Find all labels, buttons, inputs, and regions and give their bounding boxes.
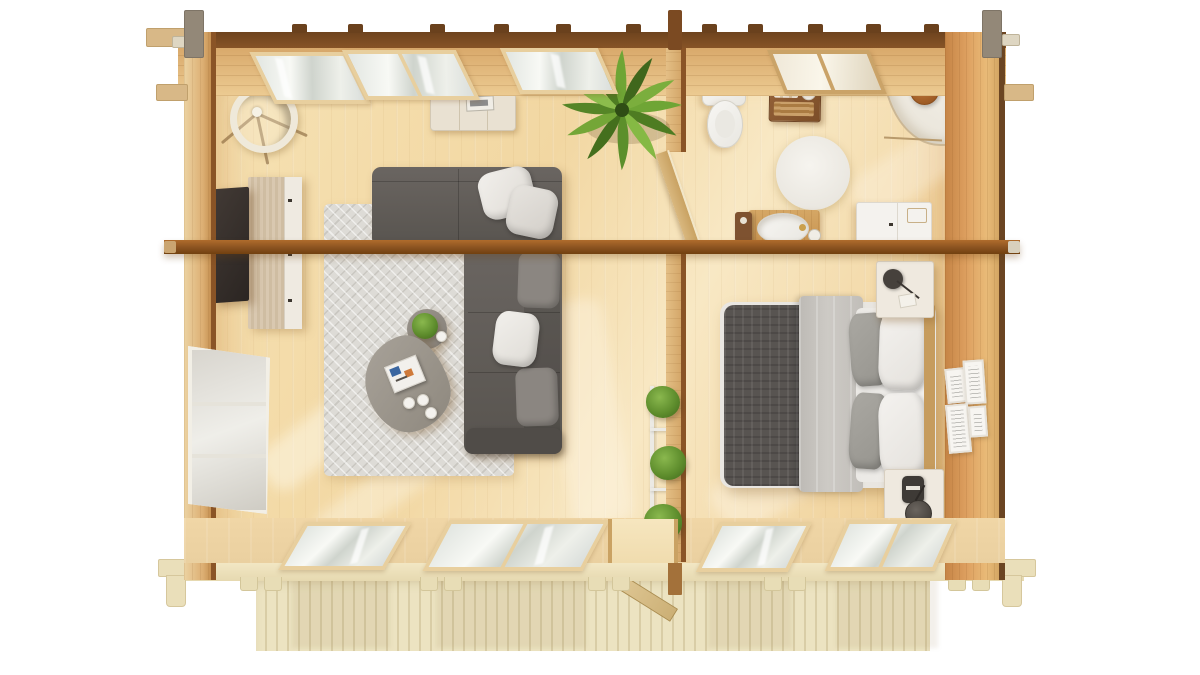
deck-shadow (836, 578, 938, 648)
coffee-cup (417, 394, 429, 406)
bed-pillow-white (878, 308, 929, 391)
book-art-blue (389, 366, 401, 377)
rafter-tab (430, 24, 445, 33)
sofa-seam (372, 181, 562, 182)
log-end-left (156, 84, 188, 101)
log-end-right (1004, 84, 1034, 101)
frame-art (968, 366, 981, 399)
joist-tab (612, 577, 630, 591)
sofa-pillow-white (491, 310, 541, 369)
frame-art (950, 373, 963, 397)
sofa-seam (458, 169, 459, 245)
corner-post-left (184, 10, 204, 58)
joist-tab (264, 577, 282, 591)
beam-end-left (164, 241, 176, 253)
coffee-cup (403, 397, 415, 409)
frame-art (973, 412, 982, 432)
rafter-tab (808, 24, 823, 33)
picture-frame (962, 359, 986, 404)
vase-band (906, 486, 920, 490)
toilet-brush-top (740, 217, 747, 224)
picture-frame (968, 405, 988, 437)
joist-tab (444, 577, 462, 591)
glass (192, 350, 266, 510)
right-wall-edge (999, 32, 1005, 580)
glass-reflection (275, 58, 292, 99)
knit-blanket (724, 305, 808, 486)
headboard (924, 305, 935, 485)
sofa-cushion-gray (515, 367, 559, 426)
book-text-line (396, 375, 408, 381)
round-bath-mat (776, 136, 850, 210)
drawer-handle (288, 199, 292, 202)
waste-bin (735, 212, 752, 242)
corner-bracket-left-leg (166, 575, 186, 607)
bathroom-top-window (767, 50, 887, 94)
corner-post-right (982, 10, 1002, 58)
desk-lamp-shade (883, 269, 903, 289)
glass-reflection (534, 526, 553, 566)
floor-lamp-hub (252, 107, 262, 117)
joist-tab (240, 577, 258, 591)
cabinet-seam (897, 203, 898, 245)
glass-reflection (417, 56, 434, 95)
top-window-3 (500, 48, 618, 94)
glass-reflection (757, 528, 773, 567)
joist-tab (588, 577, 606, 591)
doorway-opening (608, 519, 678, 563)
window-mullion (501, 524, 528, 567)
sofa-armrest (466, 428, 562, 454)
window-mullion (878, 524, 901, 567)
corner-bracket-right-leg (1002, 575, 1022, 607)
window-slat (192, 454, 266, 458)
glass-reflection (550, 54, 565, 89)
nightstand-top (876, 261, 934, 318)
rafter-tab (348, 24, 363, 33)
cabin-floorplan-render (0, 0, 1200, 675)
side-table-plant (412, 313, 438, 339)
window-mullion (817, 54, 836, 90)
glass-reflection (350, 528, 369, 565)
bed-pillow-white (878, 392, 929, 478)
joist-tab (420, 577, 438, 591)
partition-edge (681, 242, 686, 562)
center-roof-beam (164, 240, 1020, 254)
left-wall-window (188, 346, 270, 514)
rafter-tab (292, 24, 307, 33)
rafter-tab (626, 24, 641, 33)
top-window-2 (342, 50, 480, 100)
bottom-window-2 (422, 520, 609, 571)
side-table-cup (436, 331, 447, 342)
crate-shelf (774, 102, 814, 117)
rafter-tab (494, 24, 509, 33)
drawer-handle (288, 299, 292, 302)
notepad (898, 293, 917, 309)
rafter-tab (748, 24, 763, 33)
joist-tab (764, 577, 782, 591)
partition-top-post (668, 10, 682, 50)
joist-tab (788, 577, 806, 591)
window-slat (192, 402, 266, 406)
potted-plant (650, 446, 686, 480)
partition-wall-end (668, 561, 682, 595)
cabinet-handle (889, 223, 893, 226)
sofa-cushion-gray (517, 251, 561, 308)
rafter-tab (702, 24, 717, 33)
rafter-tab (924, 24, 939, 33)
bottom-window-4 (825, 520, 958, 571)
laptop-screen (470, 100, 488, 107)
beam-end-right (1008, 241, 1020, 253)
toilet-bowl (707, 100, 743, 148)
coffee-cup (425, 407, 437, 419)
frame-art (950, 410, 966, 448)
rafter-tab (556, 24, 571, 33)
deck-shadow (292, 578, 390, 648)
potted-plant (646, 386, 680, 418)
log-cap-right (1002, 34, 1020, 46)
rafter-tab (866, 24, 881, 33)
cabinet-tray (907, 208, 927, 223)
toilet-seat-inner (715, 110, 735, 138)
faucet (799, 224, 806, 231)
right-wall (945, 32, 1005, 580)
